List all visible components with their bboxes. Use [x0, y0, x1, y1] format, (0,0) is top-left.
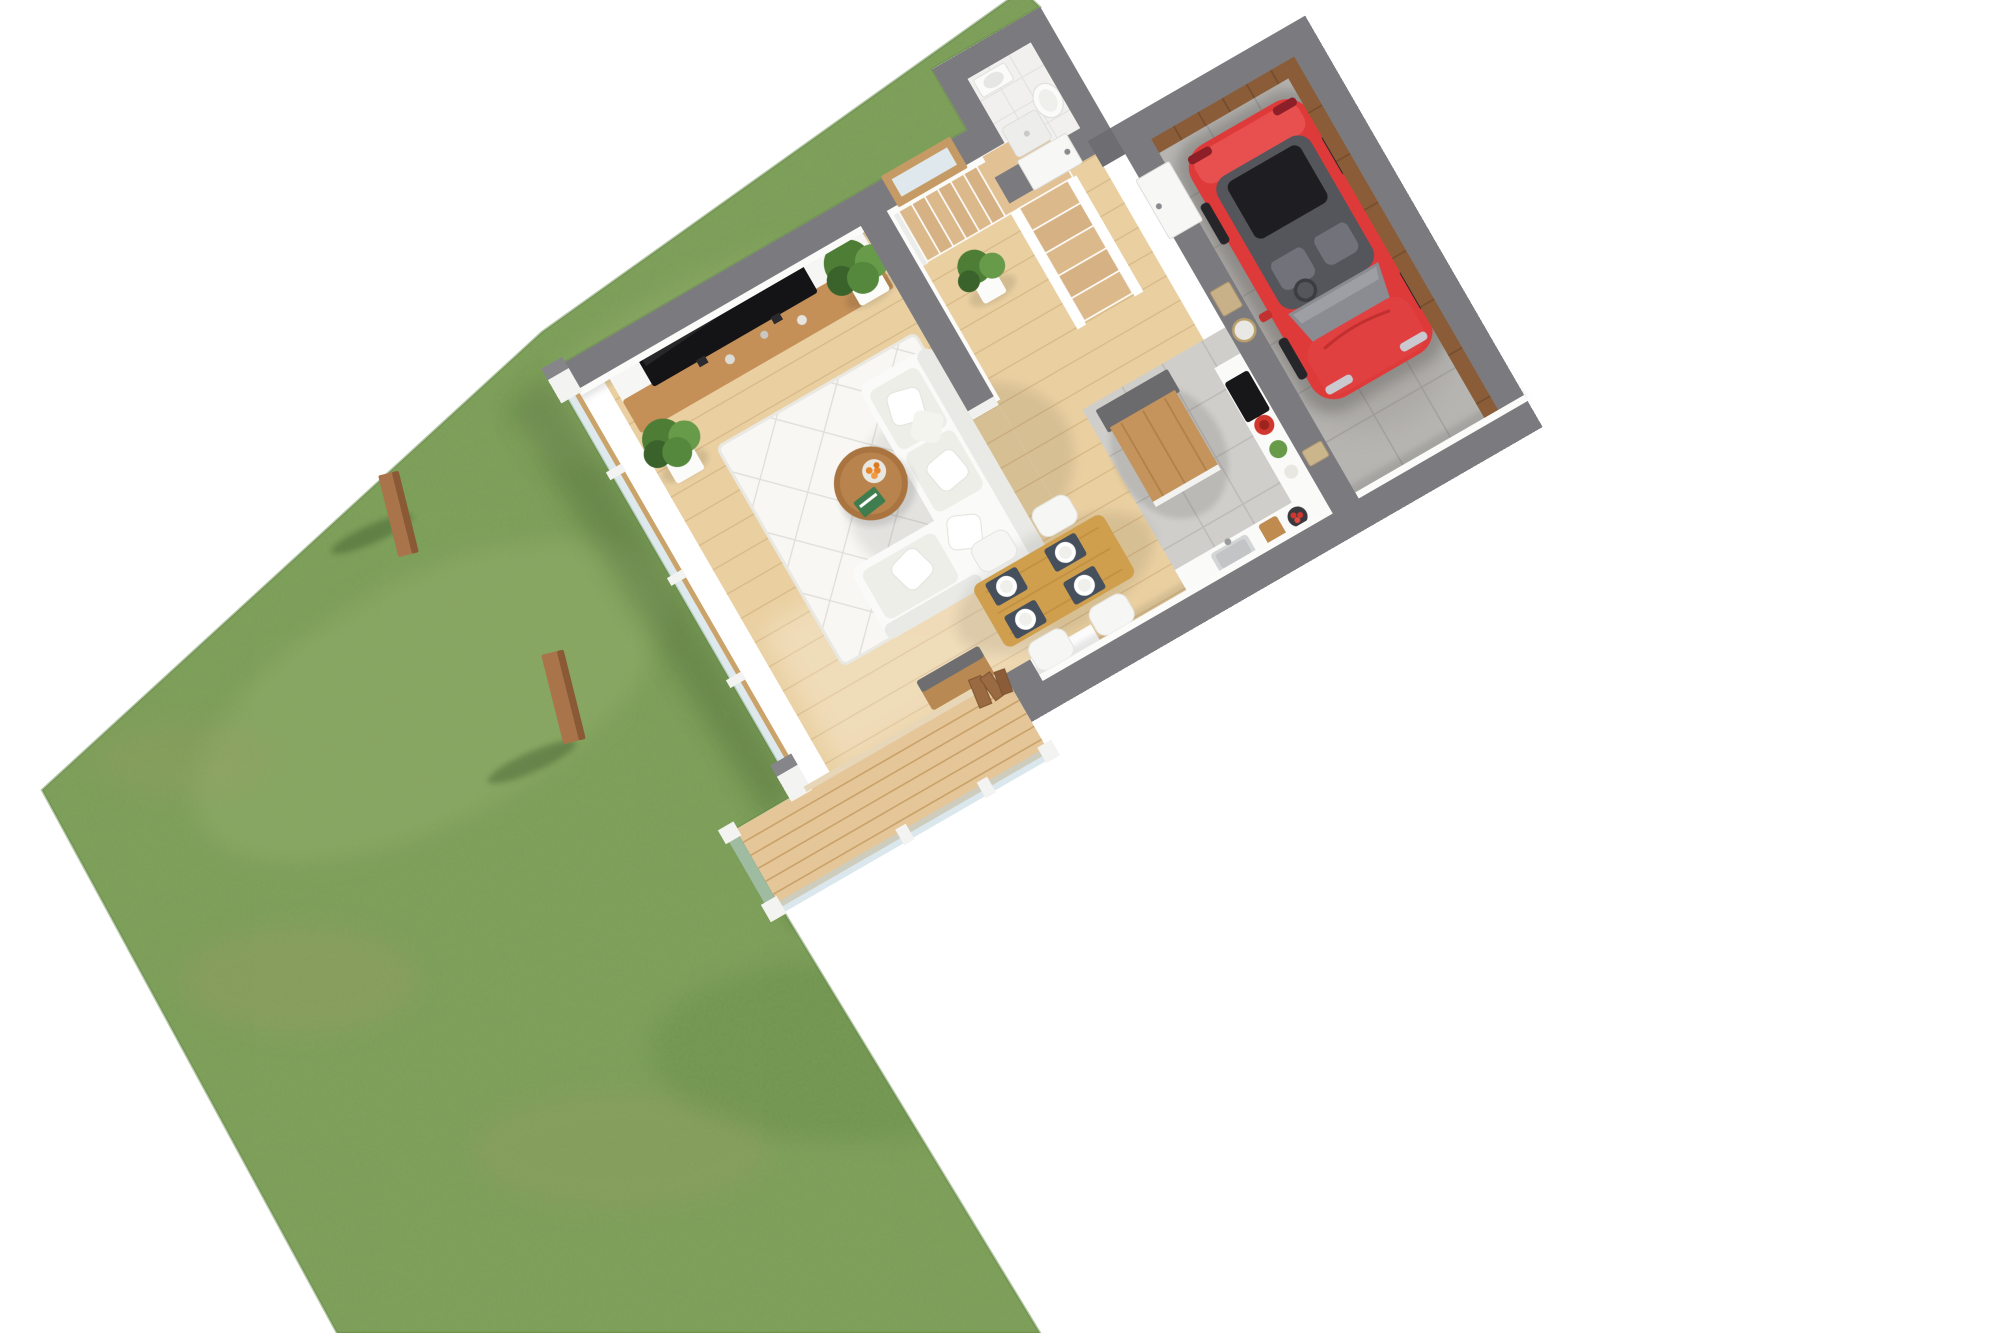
- floorplan-stage: [0, 0, 2000, 1333]
- floorplan-render: [0, 0, 2000, 1333]
- sofa-pillow: [910, 409, 945, 444]
